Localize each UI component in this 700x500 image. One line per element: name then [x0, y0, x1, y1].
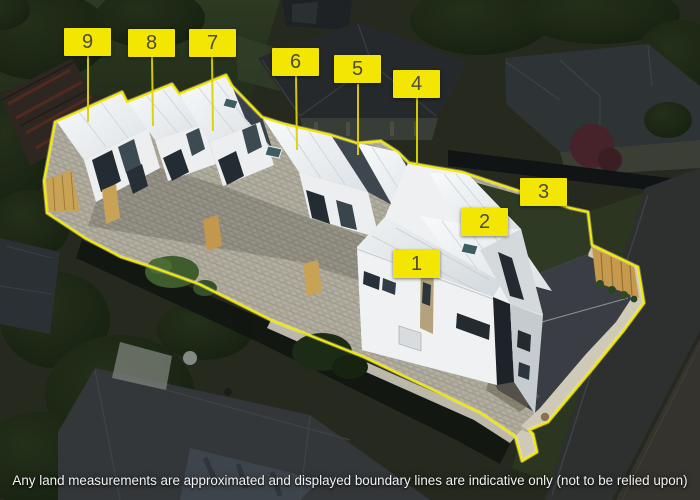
disclaimer-text: Any land measurements are approximated a… [0, 473, 700, 488]
unit-label-9: 9 [64, 28, 111, 56]
unit-label-1: 1 [393, 250, 440, 278]
unit-label-4: 4 [393, 70, 440, 98]
unit-label-2: 2 [461, 208, 508, 236]
aerial-listing-photo: 1 2 3 4 5 6 7 8 9 Any land measurements … [0, 0, 700, 500]
unit-label-7: 7 [189, 29, 236, 57]
unit-label-6: 6 [272, 48, 319, 76]
unit-label-5: 5 [334, 55, 381, 83]
unit-label-8: 8 [128, 29, 175, 57]
unit-label-3: 3 [520, 178, 567, 206]
